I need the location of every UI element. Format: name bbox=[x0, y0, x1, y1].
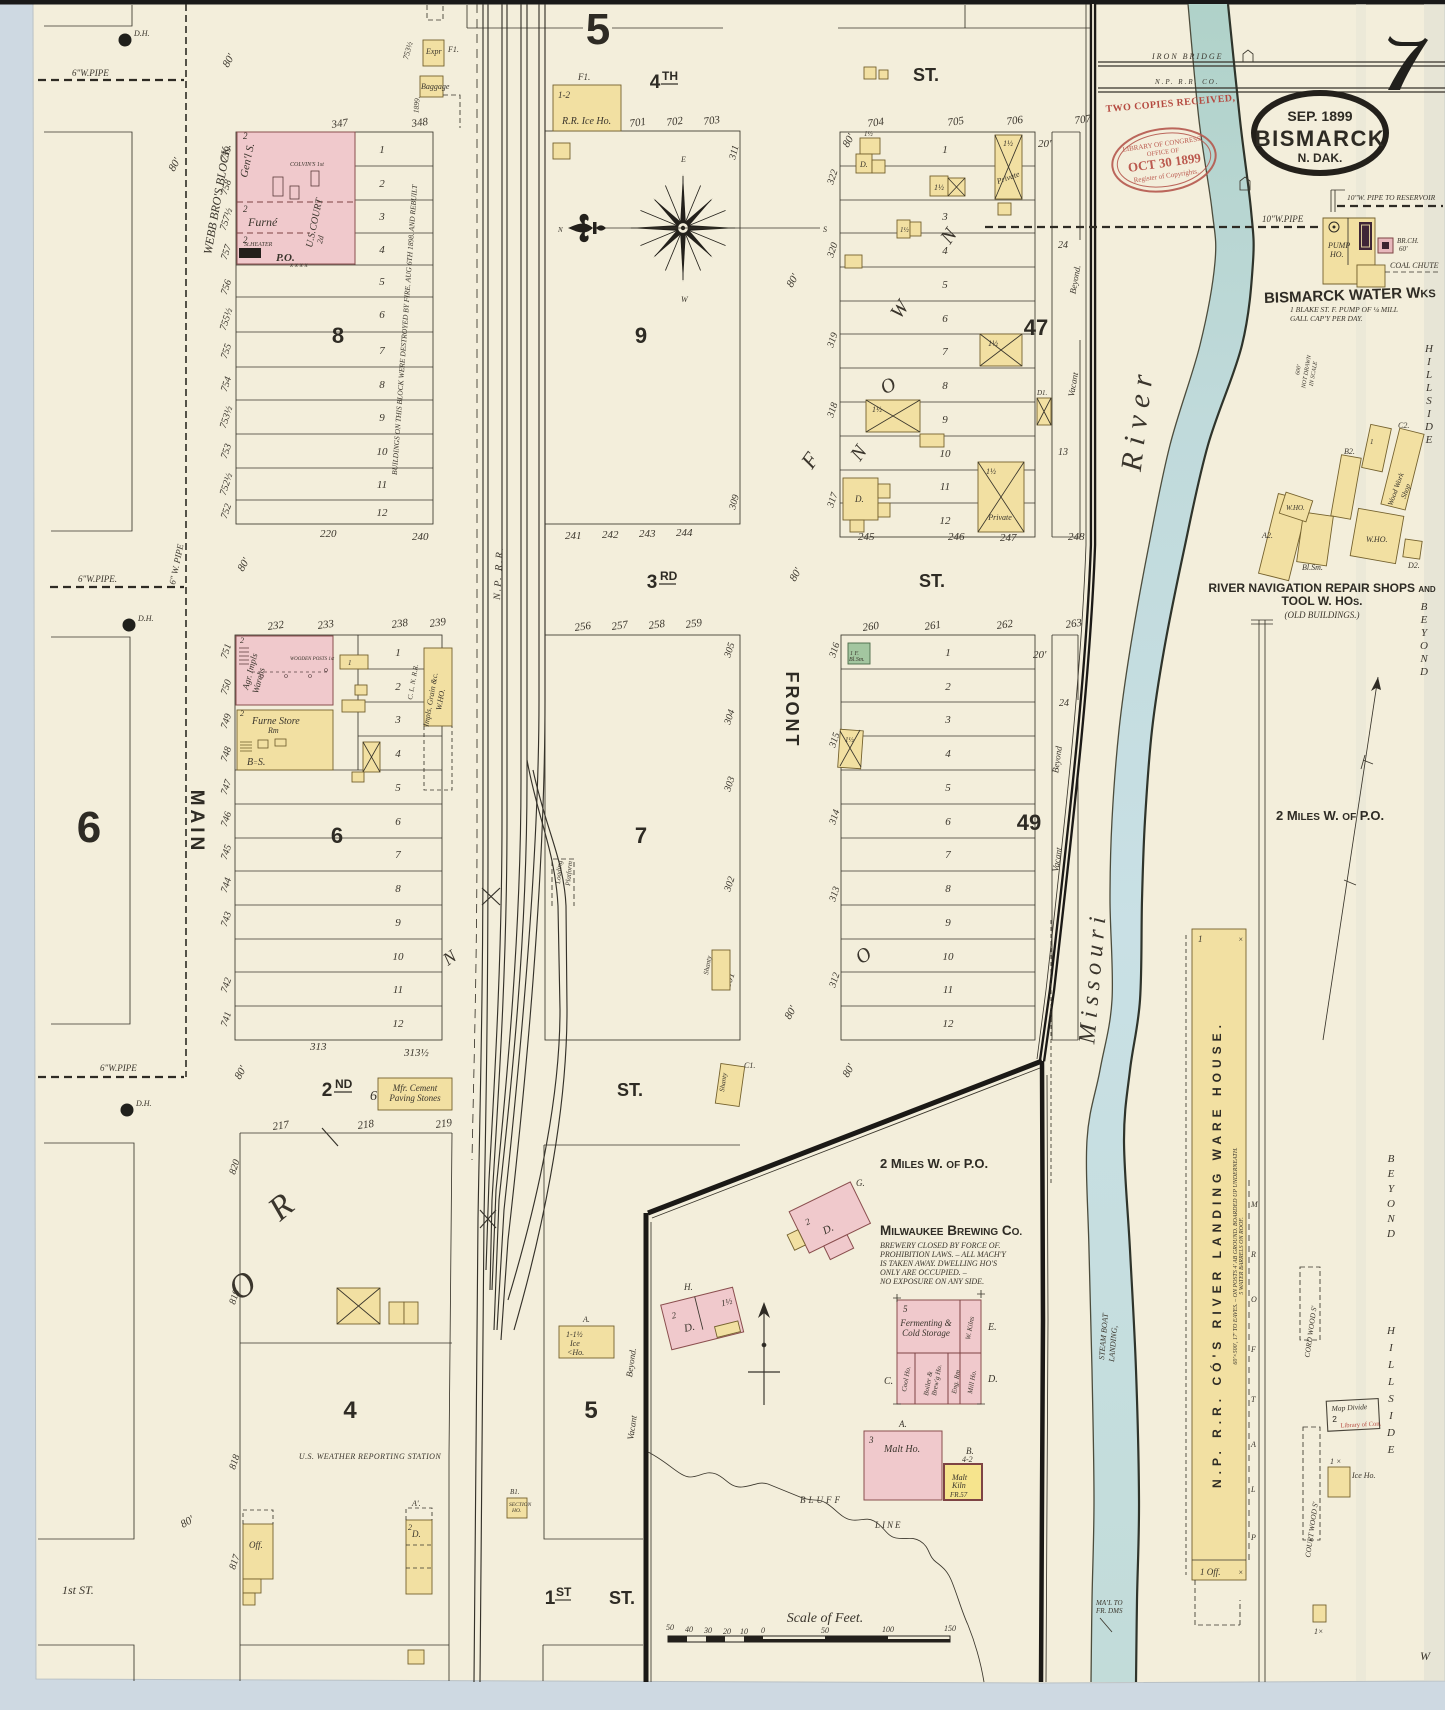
svg-text:ND: ND bbox=[335, 1077, 353, 1091]
svg-text:217: 217 bbox=[272, 1119, 291, 1133]
svg-text:D.: D. bbox=[411, 1529, 421, 1539]
svg-text:MAIN: MAIN bbox=[186, 790, 207, 855]
svg-text:10: 10 bbox=[940, 448, 952, 460]
svg-text:60': 60' bbox=[1399, 245, 1408, 253]
svg-text:ST.: ST. bbox=[617, 1080, 643, 1100]
svg-text:IRON BRIDGE: IRON BRIDGE bbox=[1151, 52, 1224, 61]
svg-text:2: 2 bbox=[408, 1523, 412, 1532]
svg-text:BLUFF: BLUFF bbox=[800, 1495, 843, 1505]
svg-text:6"W.PIPE.: 6"W.PIPE. bbox=[78, 574, 117, 584]
svg-text:E.: E. bbox=[987, 1322, 997, 1333]
svg-text:N: N bbox=[557, 226, 563, 234]
svg-text:1 Off.: 1 Off. bbox=[1200, 1567, 1221, 1577]
svg-text:5: 5 bbox=[942, 279, 948, 291]
svg-text:10: 10 bbox=[393, 951, 405, 963]
svg-text:R: R bbox=[1250, 1250, 1256, 1259]
svg-text:D2.: D2. bbox=[1407, 561, 1420, 570]
svg-text:2: 2 bbox=[1332, 1414, 1338, 1424]
svg-text:D: D bbox=[1419, 666, 1428, 678]
svg-text:232: 232 bbox=[267, 619, 286, 633]
svg-text:3: 3 bbox=[941, 211, 948, 223]
svg-text:A.: A. bbox=[582, 1315, 590, 1324]
svg-text:11: 11 bbox=[393, 984, 403, 996]
svg-text:Paving Stones: Paving Stones bbox=[388, 1093, 441, 1103]
svg-text:705: 705 bbox=[947, 115, 966, 129]
svg-text:COLVIN'S 1st: COLVIN'S 1st bbox=[290, 162, 324, 168]
svg-text:2: 2 bbox=[243, 204, 248, 214]
svg-text:2: 2 bbox=[945, 681, 951, 693]
svg-text:100: 100 bbox=[882, 1625, 894, 1634]
svg-text:D.: D. bbox=[987, 1374, 998, 1385]
svg-text:E: E bbox=[1387, 1444, 1395, 1456]
svg-text:7: 7 bbox=[942, 346, 948, 358]
svg-text:B: B bbox=[1421, 601, 1428, 613]
svg-text:S: S bbox=[1388, 1393, 1394, 1405]
svg-text:12: 12 bbox=[940, 515, 952, 527]
svg-text:4: 4 bbox=[343, 1397, 357, 1424]
svg-text:704: 704 bbox=[867, 116, 886, 130]
svg-text:239: 239 bbox=[429, 616, 448, 630]
svg-text:262: 262 bbox=[996, 618, 1015, 632]
svg-text:(OLD BUILDINGS.): (OLD BUILDINGS.) bbox=[1285, 610, 1360, 620]
svg-text:SEP. 1899: SEP. 1899 bbox=[1287, 108, 1352, 124]
svg-text:3: 3 bbox=[868, 1435, 874, 1445]
svg-text:4: 4 bbox=[395, 748, 401, 760]
svg-text:707: 707 bbox=[1074, 113, 1093, 127]
svg-text:L: L bbox=[1250, 1485, 1256, 1494]
svg-text:2 MILES W. OF P.O.: 2 MILES W. OF P.O. bbox=[880, 1156, 988, 1171]
svg-text:N.P. R.R. CO.: N.P. R.R. CO. bbox=[1154, 78, 1220, 86]
svg-text:N.P. R.R. CÓ'S RIVER LANDING W: N.P. R.R. CÓ'S RIVER LANDING WARE HOUSE. bbox=[1209, 1020, 1224, 1488]
svg-text:10: 10 bbox=[377, 446, 389, 458]
svg-text:1-1½: 1-1½ bbox=[566, 1330, 583, 1339]
svg-text:COAL CHUTE: COAL CHUTE bbox=[1390, 261, 1439, 270]
svg-text:247: 247 bbox=[1000, 532, 1017, 544]
svg-text:O: O bbox=[1387, 1198, 1395, 1210]
svg-text:HO.: HO. bbox=[1329, 250, 1344, 259]
svg-text:Mfr. Cement: Mfr. Cement bbox=[392, 1083, 438, 1093]
svg-text:1½: 1½ bbox=[986, 467, 996, 476]
svg-text:Furné: Furné bbox=[247, 215, 278, 229]
svg-text:0: 0 bbox=[761, 1626, 765, 1635]
svg-text:243: 243 bbox=[639, 528, 656, 540]
svg-text:BR.CH.: BR.CH. bbox=[1397, 237, 1419, 245]
svg-text:241: 241 bbox=[565, 530, 582, 542]
svg-text:6: 6 bbox=[942, 313, 948, 325]
svg-text:313: 313 bbox=[309, 1041, 327, 1053]
svg-text:GALL CAP'Y PER DAY.: GALL CAP'Y PER DAY. bbox=[1290, 314, 1363, 323]
svg-text:WOODEN POSTS 1st: WOODEN POSTS 1st bbox=[290, 657, 335, 662]
svg-text:703: 703 bbox=[703, 114, 722, 128]
svg-text:6"W.PIPE: 6"W.PIPE bbox=[100, 1063, 137, 1073]
svg-text:B2.: B2. bbox=[1344, 447, 1355, 456]
svg-text:7: 7 bbox=[395, 849, 401, 861]
svg-text:1½: 1½ bbox=[934, 183, 944, 192]
svg-text:1-2: 1-2 bbox=[558, 90, 570, 100]
svg-text:6"W.PIPE: 6"W.PIPE bbox=[72, 68, 109, 78]
svg-text:D: D bbox=[1386, 1427, 1395, 1439]
svg-text:Expr: Expr bbox=[425, 47, 442, 56]
svg-text:245: 245 bbox=[858, 531, 875, 543]
svg-text:H.: H. bbox=[683, 1282, 693, 1292]
svg-text:5: 5 bbox=[586, 5, 610, 54]
svg-text:6: 6 bbox=[395, 816, 401, 828]
svg-text:6: 6 bbox=[945, 816, 951, 828]
svg-text:H: H bbox=[1386, 1325, 1396, 1337]
svg-text:1st ST.: 1st ST. bbox=[62, 1583, 94, 1597]
svg-text:Kiln: Kiln bbox=[951, 1481, 966, 1490]
svg-text:11: 11 bbox=[943, 984, 953, 996]
svg-text:4: 4 bbox=[379, 244, 385, 256]
svg-text:RIVER NAVIGATION REPAIR SHOPS: RIVER NAVIGATION REPAIR SHOPS AND bbox=[1208, 581, 1436, 595]
svg-text:50: 50 bbox=[821, 1626, 829, 1635]
svg-text:HO.: HO. bbox=[511, 1508, 521, 1514]
svg-text:L: L bbox=[1425, 382, 1432, 394]
svg-text:347: 347 bbox=[330, 117, 349, 131]
svg-text:2: 2 bbox=[240, 636, 244, 645]
svg-text:10"W. PIPE TO RESERVOIR: 10"W. PIPE TO RESERVOIR bbox=[1347, 193, 1436, 202]
svg-text:240: 240 bbox=[412, 531, 429, 543]
svg-text:BREWERY CLOSED BY FORCE OF: BREWERY CLOSED BY FORCE OF. bbox=[880, 1241, 1000, 1250]
svg-text:Fermenting &: Fermenting & bbox=[899, 1318, 951, 1328]
svg-text:TOOL W. HOS.: TOOL W. HOS. bbox=[1282, 594, 1363, 608]
svg-text:220: 220 bbox=[320, 528, 337, 540]
svg-text:L: L bbox=[1425, 369, 1432, 381]
svg-text:5: 5 bbox=[903, 1304, 908, 1314]
svg-text:233: 233 bbox=[317, 618, 336, 632]
svg-text:Bl.Sm.: Bl.Sm. bbox=[1302, 563, 1323, 572]
svg-text:D: D bbox=[1386, 1228, 1395, 1240]
svg-text:B1.: B1. bbox=[510, 1488, 520, 1496]
svg-text:701: 701 bbox=[629, 116, 647, 130]
svg-text:3: 3 bbox=[647, 572, 658, 593]
svg-text:8: 8 bbox=[379, 379, 385, 391]
svg-text:Baggage: Baggage bbox=[421, 82, 450, 91]
svg-text:1½: 1½ bbox=[864, 130, 874, 138]
svg-text:W.HO.: W.HO. bbox=[1286, 504, 1305, 512]
svg-text:313½: 313½ bbox=[403, 1047, 429, 1059]
svg-text:N: N bbox=[1386, 1213, 1395, 1225]
svg-text:10: 10 bbox=[740, 1627, 748, 1636]
svg-text:O: O bbox=[1251, 1295, 1257, 1304]
svg-text:1 ×: 1 × bbox=[1330, 1457, 1341, 1466]
svg-text:60'×500', 17' TO EAVES. – ON P: 60'×500', 17' TO EAVES. – ON POSTS 4' AB… bbox=[1232, 1147, 1239, 1364]
svg-text:20: 20 bbox=[723, 1627, 731, 1636]
svg-text:1: 1 bbox=[395, 647, 401, 659]
svg-text:7: 7 bbox=[379, 345, 385, 357]
svg-text:263: 263 bbox=[1065, 617, 1084, 631]
svg-text:IS TAKEN AWAY. DWELLING HO: IS TAKEN AWAY. DWELLING HO'S bbox=[879, 1259, 997, 1268]
svg-text:40: 40 bbox=[685, 1625, 693, 1634]
svg-text:Private: Private bbox=[987, 513, 1012, 522]
svg-text:219: 219 bbox=[435, 1117, 454, 1131]
svg-text:E: E bbox=[1387, 1168, 1395, 1180]
svg-text:150: 150 bbox=[944, 1624, 956, 1633]
svg-text:W.HO.: W.HO. bbox=[1366, 535, 1387, 544]
svg-text:8: 8 bbox=[942, 380, 948, 392]
svg-text:1: 1 bbox=[1198, 934, 1203, 944]
svg-text:11: 11 bbox=[940, 481, 950, 493]
svg-text:N. DAK.: N. DAK. bbox=[1298, 151, 1343, 165]
svg-text:M: M bbox=[1250, 1200, 1259, 1209]
svg-text:261: 261 bbox=[924, 619, 942, 633]
svg-text:TH: TH bbox=[662, 69, 678, 83]
svg-text:F: F bbox=[1250, 1345, 1256, 1354]
svg-text:2 MILES W. OF P.O.: 2 MILES W. OF P.O. bbox=[1276, 808, 1384, 823]
svg-text:St.HEATER: St.HEATER bbox=[244, 242, 273, 248]
svg-text:3: 3 bbox=[944, 714, 951, 726]
svg-text:242: 242 bbox=[602, 529, 619, 541]
svg-text:B=S.: B=S. bbox=[247, 757, 265, 768]
svg-text:MA’L TO: MA’L TO bbox=[1095, 1599, 1123, 1607]
svg-text:Rm: Rm bbox=[267, 726, 279, 735]
svg-text:12: 12 bbox=[377, 507, 389, 519]
svg-text:6: 6 bbox=[370, 1089, 377, 1104]
svg-text:348: 348 bbox=[410, 116, 429, 130]
svg-text:F1.: F1. bbox=[577, 72, 590, 82]
svg-text:1: 1 bbox=[942, 144, 948, 156]
svg-text:2: 2 bbox=[240, 709, 244, 718]
svg-text:FR.57: FR.57 bbox=[949, 1491, 968, 1499]
svg-text:3: 3 bbox=[394, 714, 401, 726]
svg-text:12: 12 bbox=[943, 1018, 955, 1030]
svg-text:5: 5 bbox=[379, 276, 385, 288]
svg-text:2: 2 bbox=[243, 131, 248, 141]
svg-text:9: 9 bbox=[942, 414, 948, 426]
svg-text:B: B bbox=[1388, 1153, 1395, 1165]
svg-text:218: 218 bbox=[357, 1118, 376, 1132]
svg-text:244: 244 bbox=[676, 527, 693, 539]
svg-text:S: S bbox=[823, 225, 827, 234]
svg-text:1½: 1½ bbox=[988, 339, 998, 348]
svg-text:6: 6 bbox=[379, 309, 385, 321]
svg-text:ST.: ST. bbox=[913, 65, 939, 85]
svg-text:30: 30 bbox=[703, 1626, 712, 1635]
svg-text:B.: B. bbox=[966, 1446, 974, 1456]
svg-text:1½: 1½ bbox=[872, 405, 882, 414]
svg-text:4: 4 bbox=[942, 245, 948, 257]
svg-text:24: 24 bbox=[1058, 240, 1068, 251]
svg-text:E: E bbox=[1420, 614, 1428, 626]
svg-text:D.H.: D.H. bbox=[135, 1099, 152, 1108]
svg-text:3: 3 bbox=[378, 211, 385, 223]
svg-text:x x x x: x x x x bbox=[289, 261, 309, 269]
svg-text:Scale of Feet.: Scale of Feet. bbox=[787, 1611, 864, 1626]
svg-text:E: E bbox=[1425, 434, 1433, 446]
svg-text:9: 9 bbox=[945, 917, 951, 929]
svg-text:Off.: Off. bbox=[249, 1540, 263, 1550]
svg-text:7: 7 bbox=[945, 849, 951, 861]
svg-text:50: 50 bbox=[666, 1623, 674, 1632]
svg-text:PUMP: PUMP bbox=[1327, 241, 1350, 250]
svg-text:NO EXPOSURE ON ANY SIDE.: NO EXPOSURE ON ANY SIDE. bbox=[879, 1277, 984, 1286]
svg-text:Malt Ho.: Malt Ho. bbox=[883, 1444, 920, 1455]
svg-text:5: 5 bbox=[584, 1397, 597, 1424]
svg-text:ST: ST bbox=[556, 1585, 572, 1599]
svg-text:D1.: D1. bbox=[1036, 389, 1048, 397]
svg-text:706: 706 bbox=[1006, 114, 1025, 128]
svg-text:258: 258 bbox=[648, 618, 667, 632]
svg-text:11: 11 bbox=[377, 479, 387, 491]
svg-text:FRONT: FRONT bbox=[782, 672, 802, 749]
svg-text:E: E bbox=[680, 155, 686, 164]
svg-text:8: 8 bbox=[395, 883, 401, 895]
svg-text:ST.: ST. bbox=[609, 1588, 635, 1608]
svg-text:Cold Storage: Cold Storage bbox=[902, 1328, 950, 1338]
svg-text:A2.: A2. bbox=[1261, 531, 1273, 540]
svg-text:ONLY ARE OCCUPIED. –: ONLY ARE OCCUPIED. – bbox=[880, 1268, 968, 1277]
svg-text:A.: A. bbox=[898, 1419, 907, 1429]
svg-text:259: 259 bbox=[685, 617, 704, 631]
svg-text:R.R. Ice Ho.: R.R. Ice Ho. bbox=[561, 116, 611, 127]
svg-text:T: T bbox=[1251, 1395, 1256, 1404]
svg-text:246: 246 bbox=[948, 531, 965, 543]
svg-text:S: S bbox=[1426, 395, 1432, 407]
svg-text:C.: C. bbox=[884, 1376, 893, 1387]
svg-text:A: A bbox=[1250, 1440, 1256, 1449]
svg-text:D.H.: D.H. bbox=[137, 614, 154, 623]
svg-text:10: 10 bbox=[943, 951, 955, 963]
svg-text:×: × bbox=[1238, 935, 1243, 944]
svg-text:13: 13 bbox=[1058, 447, 1068, 458]
svg-text:20': 20' bbox=[1038, 138, 1052, 150]
svg-text:1: 1 bbox=[379, 144, 385, 156]
svg-text:238: 238 bbox=[391, 617, 410, 631]
svg-text:257: 257 bbox=[611, 619, 630, 633]
svg-text:4-2: 4-2 bbox=[962, 1455, 973, 1464]
svg-text:L: L bbox=[1387, 1376, 1394, 1388]
svg-text:12: 12 bbox=[393, 1018, 405, 1030]
svg-text:W: W bbox=[1420, 1649, 1431, 1663]
svg-text:1×: 1× bbox=[1314, 1627, 1323, 1636]
svg-text:BISMARCK: BISMARCK bbox=[1255, 126, 1386, 151]
svg-text:U.S. WEATHER REPORTING STATION: U.S. WEATHER REPORTING STATION bbox=[299, 1452, 441, 1461]
svg-text:Ice: Ice bbox=[569, 1339, 580, 1348]
svg-text:N: N bbox=[1419, 653, 1428, 665]
svg-text:1½: 1½ bbox=[845, 736, 855, 744]
svg-text:10"W.PIPE: 10"W.PIPE bbox=[1262, 214, 1304, 224]
svg-text:6: 6 bbox=[331, 823, 343, 848]
svg-text:8: 8 bbox=[945, 883, 951, 895]
svg-text:LINE: LINE bbox=[874, 1520, 903, 1530]
svg-text:<Ho.: <Ho. bbox=[567, 1348, 584, 1357]
svg-text:FR. DMS: FR. DMS bbox=[1095, 1607, 1123, 1615]
svg-text:D.H.: D.H. bbox=[133, 29, 150, 38]
svg-text:1: 1 bbox=[545, 1588, 556, 1609]
svg-text:G.: G. bbox=[856, 1178, 865, 1188]
svg-text:2: 2 bbox=[395, 681, 401, 693]
svg-text:1½: 1½ bbox=[1003, 139, 1013, 148]
svg-text:D: D bbox=[1424, 421, 1433, 433]
svg-text:1: 1 bbox=[1370, 438, 1374, 446]
svg-text:D.: D. bbox=[859, 160, 868, 169]
svg-text:1: 1 bbox=[945, 647, 951, 659]
svg-text:47: 47 bbox=[1024, 315, 1048, 340]
svg-text:O: O bbox=[1420, 640, 1428, 652]
svg-text:260: 260 bbox=[862, 620, 881, 634]
svg-text:9: 9 bbox=[635, 323, 647, 348]
svg-text:×: × bbox=[1238, 1568, 1243, 1577]
svg-text:5: 5 bbox=[945, 782, 951, 794]
svg-text:Ice Ho.: Ice Ho. bbox=[1351, 1471, 1376, 1480]
svg-text:H: H bbox=[1424, 343, 1434, 355]
svg-text:1½: 1½ bbox=[900, 226, 910, 234]
svg-text:C1.: C1. bbox=[744, 1061, 755, 1070]
svg-text:256: 256 bbox=[574, 620, 593, 634]
svg-text:9: 9 bbox=[379, 412, 385, 424]
svg-text:1899.: 1899. bbox=[411, 96, 421, 114]
svg-text:RD: RD bbox=[660, 569, 678, 583]
svg-text:24: 24 bbox=[1059, 698, 1069, 709]
svg-text:F1.: F1. bbox=[447, 45, 459, 54]
svg-text:P: P bbox=[1250, 1533, 1256, 1542]
svg-text:C2.: C2. bbox=[1398, 421, 1409, 430]
svg-text:PROHIBITION LAWS. – ALL MACH: PROHIBITION LAWS. – ALL MACH'Y bbox=[879, 1250, 1007, 1259]
svg-text:702: 702 bbox=[666, 115, 685, 129]
svg-text:ST.: ST. bbox=[919, 571, 945, 591]
svg-text:1: 1 bbox=[348, 659, 352, 667]
svg-text:Bl.Sm.: Bl.Sm. bbox=[849, 657, 865, 663]
svg-text:6: 6 bbox=[77, 803, 101, 852]
svg-text:9: 9 bbox=[395, 917, 401, 929]
svg-text:49: 49 bbox=[1017, 810, 1041, 835]
svg-text:5 WATER BARRELS ON ROOF.: 5 WATER BARRELS ON ROOF. bbox=[1239, 1217, 1245, 1294]
svg-text:7: 7 bbox=[635, 823, 647, 848]
svg-text:2: 2 bbox=[322, 1080, 333, 1101]
svg-text:D.: D. bbox=[854, 494, 864, 504]
svg-text:L: L bbox=[1387, 1359, 1394, 1371]
svg-text:4: 4 bbox=[650, 72, 661, 93]
svg-text:1 BLAKE ST. F. PUMP OF ¼ MI: 1 BLAKE ST. F. PUMP OF ¼ MILL bbox=[1290, 305, 1398, 314]
svg-text:8: 8 bbox=[332, 323, 344, 348]
svg-text:4: 4 bbox=[945, 748, 951, 760]
svg-text:2: 2 bbox=[379, 178, 385, 190]
svg-text:A'.: A'. bbox=[411, 1499, 421, 1508]
svg-text:5: 5 bbox=[395, 782, 401, 794]
